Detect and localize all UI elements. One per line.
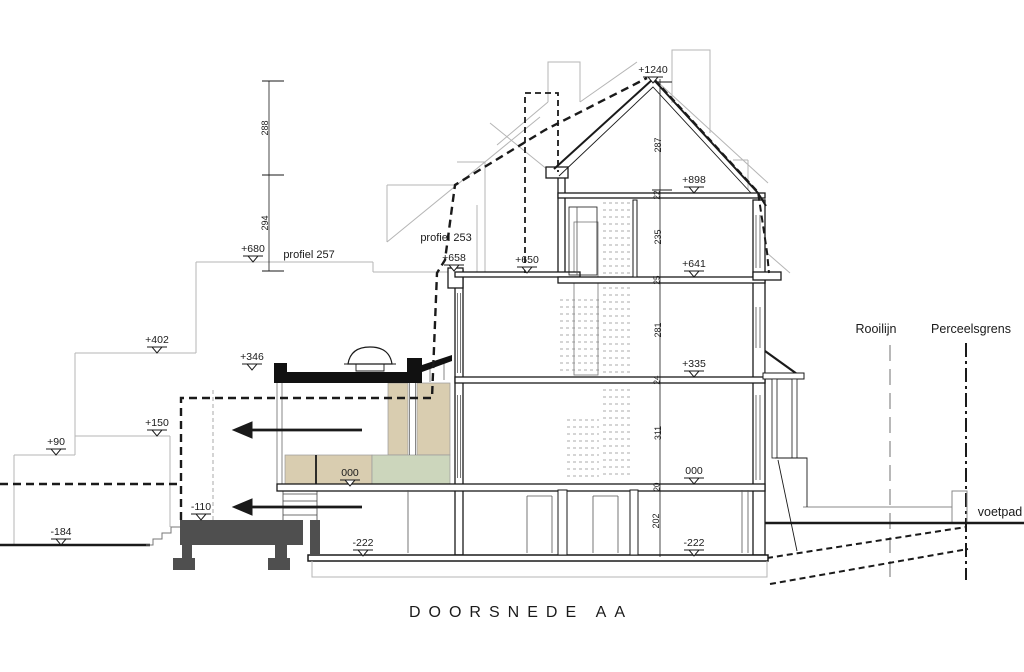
annotation-profiel-253: profiel 253 [420,232,471,244]
second-floor-partition [633,200,637,277]
basement-front-wall [310,520,320,556]
level-extension-roof: +346 [240,351,264,363]
dim-roof: 287 [653,137,663,152]
extension-section [274,347,452,520]
level-first-floor: +335 [682,358,706,370]
dim-ground-slab: 20 [653,483,662,492]
level-basement-rear: -222 [352,537,373,549]
level-second-floor: +641 [682,258,706,270]
dim-basement: 202 [651,513,661,528]
front-cornice [753,272,781,280]
extension-roof-parapet-left [274,363,287,383]
level-garden-ground: -184 [50,526,71,538]
porch-column-left [772,379,777,458]
foundation-concrete [173,520,320,570]
dim-first: 281 [653,322,663,337]
level-attic-floor: +898 [682,174,706,186]
footing-left [173,558,195,570]
garden-stair [283,487,317,520]
level-profile-402: +402 [145,334,169,346]
level-profile-150: +150 [145,417,169,429]
annotation-perceelsgrens: Perceelsgrens [931,322,1011,336]
pier-left [182,545,192,558]
sidewalk-line [803,491,967,523]
rear-wall [455,270,463,555]
drawing-title: DOORSNEDE AA [409,604,633,622]
excavation-dashed-lines [767,527,968,584]
stoop-outline [775,458,807,551]
dome-skylight [348,347,392,364]
level-profile-680: +680 [241,243,265,255]
extension-wall-fill-left [388,383,408,455]
gable-end-wall [558,172,565,273]
level-ground-rear: 000 [341,467,359,479]
annotation-profiel-257: profiel 257 [283,249,334,261]
annotation-rooilijn: Rooilijn [856,322,897,336]
dim-attic-slab: 22 [653,191,662,200]
level-ridge: +1240 [638,64,668,76]
extension-wall-fill-right [417,383,450,455]
extension-base-fill-green [372,455,450,487]
dim-left-upper: 288 [260,120,270,135]
basement-wall-mid [558,490,567,555]
level-basement-front: -222 [683,537,704,549]
front-porch [763,351,807,551]
porch-eave-board [763,373,804,379]
extension-sloped-roof-beam [422,355,452,372]
pier-right [275,545,287,558]
footing-right [268,558,290,570]
dim-left-lower: 294 [260,215,270,230]
chimney-dashed [525,93,558,273]
closet-second-floor [569,207,597,275]
profiel-253-dashed [181,78,647,520]
stairwell-outline [574,222,598,375]
dim-second: 235 [653,229,663,244]
extension-roof-slab [287,372,422,383]
annex-roof-slab [455,272,580,277]
terrace-slab [180,520,303,545]
dim-ground: 311 [653,426,663,440]
first-floor-slab [455,377,765,383]
basement-floor-slab [308,555,768,561]
porch-column-right [792,379,797,458]
attic-floor-slab [558,193,765,198]
second-floor-slab [558,277,765,283]
rear-parapet [448,268,463,288]
level-rear-roof-inner: +650 [515,254,539,266]
section-drawing: 288 294 287 22 235 25 281 24 311 20 202 … [0,0,1024,672]
level-rear-roof-outer: +658 [442,252,466,264]
foundation-outline [312,561,767,577]
level-garden-terrace: -110 [191,501,211,513]
extension-roof-parapet-right [407,358,422,373]
level-ground-front: 000 [685,465,703,477]
eave-gutter-left [546,167,568,178]
basement-wall-right [630,490,638,555]
roof-profile-right-dashed [655,80,769,273]
dome-skylight-base [344,364,396,371]
stair-hatching [560,203,632,476]
annotation-voetpad: voetpad [978,505,1022,519]
level-profile-90: +90 [47,436,65,448]
garden-steps-left [146,527,180,545]
dim-second-slab: 25 [653,276,662,285]
dim-first-slab: 24 [653,376,662,385]
